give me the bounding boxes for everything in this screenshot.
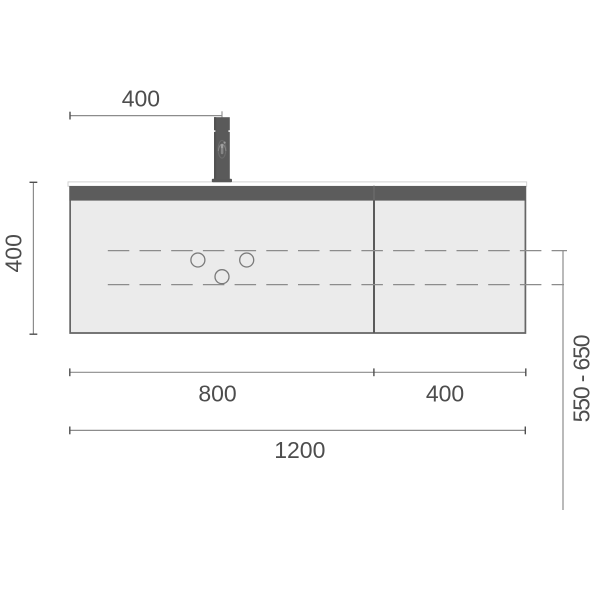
- svg-text:800: 800: [198, 381, 236, 407]
- svg-text:400: 400: [122, 86, 160, 112]
- svg-text:400: 400: [0, 234, 26, 272]
- svg-text:550 - 650: 550 - 650: [569, 334, 595, 422]
- svg-text:1200: 1200: [274, 437, 325, 463]
- svg-text:400: 400: [426, 380, 464, 406]
